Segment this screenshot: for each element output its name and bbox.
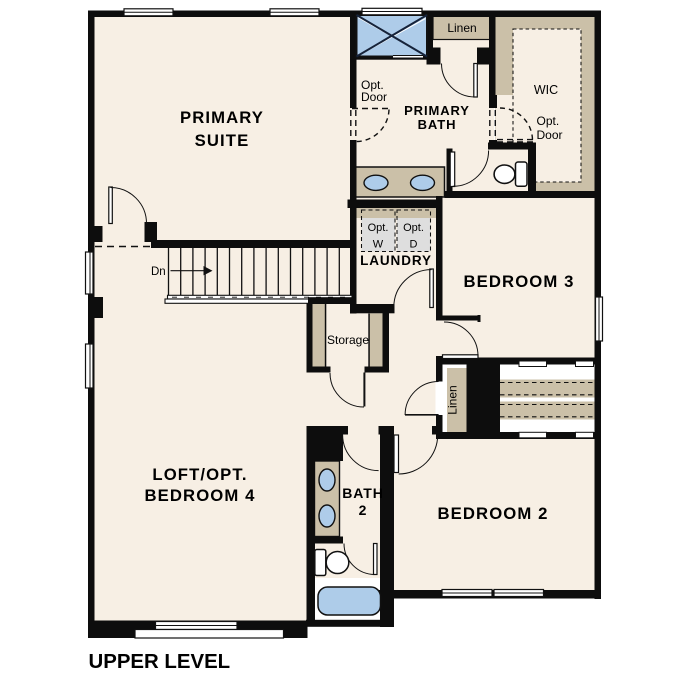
svg-text:Linen: Linen <box>446 385 460 414</box>
svg-text:2: 2 <box>359 502 368 518</box>
svg-text:BEDROOM 3: BEDROOM 3 <box>464 272 575 291</box>
svg-text:Door: Door <box>361 90 387 104</box>
svg-text:W: W <box>373 239 384 251</box>
svg-text:BATH: BATH <box>342 485 383 501</box>
svg-text:Opt.: Opt. <box>537 114 560 128</box>
svg-text:BEDROOM 2: BEDROOM 2 <box>438 504 549 523</box>
svg-text:LAUNDRY: LAUNDRY <box>360 253 432 268</box>
svg-text:PRIMARY: PRIMARY <box>180 108 264 127</box>
svg-text:Opt.: Opt. <box>368 222 389 234</box>
svg-text:Storage: Storage <box>327 333 369 347</box>
svg-text:WIC: WIC <box>534 83 558 97</box>
svg-text:BATH: BATH <box>418 117 457 132</box>
svg-text:UPPER LEVEL: UPPER LEVEL <box>89 651 231 673</box>
svg-text:D: D <box>410 239 418 251</box>
svg-text:Door: Door <box>537 128 563 142</box>
svg-text:BEDROOM 4: BEDROOM 4 <box>145 486 256 505</box>
svg-text:PRIMARY: PRIMARY <box>404 103 470 118</box>
svg-text:LOFT/OPT.: LOFT/OPT. <box>152 465 247 484</box>
svg-text:Dn: Dn <box>151 266 166 278</box>
svg-text:Linen: Linen <box>447 21 476 35</box>
svg-text:SUITE: SUITE <box>195 131 250 150</box>
svg-text:Opt.: Opt. <box>403 222 424 234</box>
